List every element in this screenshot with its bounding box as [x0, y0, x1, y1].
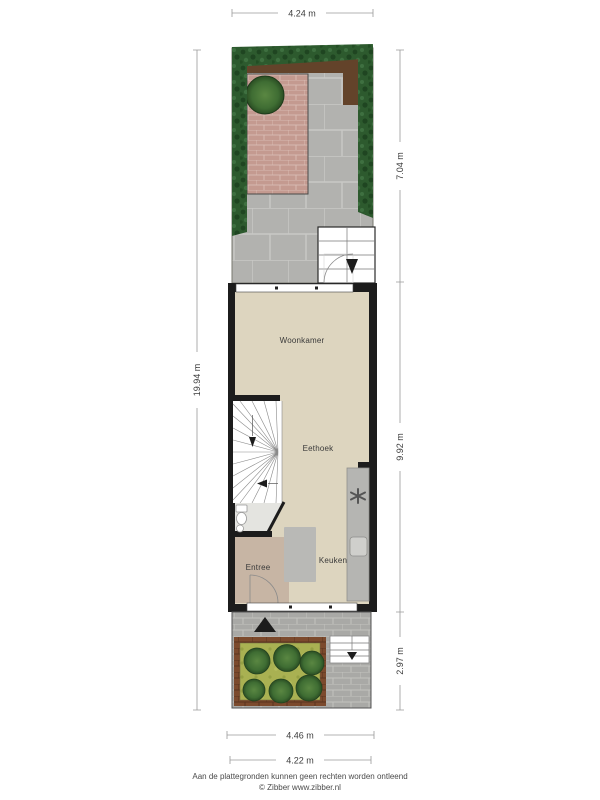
dimension-back-garden-depth: 7.04 m	[393, 50, 407, 282]
window-mullion	[315, 287, 318, 290]
dimension-total-depth-label: 19.94 m	[192, 364, 202, 397]
window-mullion	[329, 606, 332, 609]
rear-window-band	[236, 284, 353, 292]
dimension-front-garden-depth: 2.97 m	[393, 612, 407, 710]
toilet-cistern	[236, 505, 247, 512]
hedge-right	[358, 46, 373, 218]
rug	[284, 527, 316, 582]
front-steps	[330, 636, 369, 663]
dimension-house-width-label: 4.46 m	[286, 731, 314, 741]
dimension-house-depth-label: 9.92 m	[395, 433, 405, 461]
house: Woonkamer Eethoek Keuken Entree	[228, 283, 377, 612]
stair-wall	[228, 395, 280, 401]
dimension-house-width: 4.46 m	[227, 728, 374, 742]
window-mullion	[275, 287, 278, 290]
room-label-entree: Entree	[246, 563, 271, 572]
dimension-total-depth: 19.94 m	[190, 50, 204, 710]
dimension-back-garden-depth-label: 7.04 m	[395, 152, 405, 180]
dimension-front-garden-depth-label: 2.97 m	[395, 647, 405, 675]
window-mullion	[289, 606, 292, 609]
dimension-top-width: 4.24 m	[232, 6, 373, 20]
dimension-house-depth: 9.92 m	[393, 282, 407, 612]
toilet-sink	[237, 525, 244, 532]
dimension-plot-width-label: 4.22 m	[286, 756, 314, 766]
footer-credit: © Zibber www.zibber.nl	[259, 783, 341, 792]
back-garden	[232, 44, 375, 283]
kitchen-counter	[347, 468, 369, 601]
hedge-left	[232, 47, 247, 236]
rear-steps	[318, 227, 375, 283]
room-label-woonkamer: Woonkamer	[280, 336, 325, 345]
staircase	[228, 395, 282, 503]
floorplan-page: 4.24 m	[0, 0, 600, 800]
footer: Aan de plattegronden kunnen geen rechten…	[192, 772, 407, 792]
room-label-eethoek: Eethoek	[303, 444, 335, 453]
front-window-band	[247, 603, 357, 611]
patio-tree	[246, 76, 284, 114]
dimension-top-width-label: 4.24 m	[288, 9, 316, 19]
front-garden	[232, 612, 371, 708]
floorplan-canvas: 4.24 m	[0, 0, 600, 800]
toilet-wall	[228, 531, 272, 537]
sink	[350, 537, 367, 556]
room-label-keuken: Keuken	[319, 556, 347, 565]
footer-disclaimer: Aan de plattegronden kunnen geen rechten…	[192, 772, 407, 781]
dimension-plot-width: 4.22 m	[230, 753, 371, 767]
toilet-bowl	[237, 513, 247, 525]
